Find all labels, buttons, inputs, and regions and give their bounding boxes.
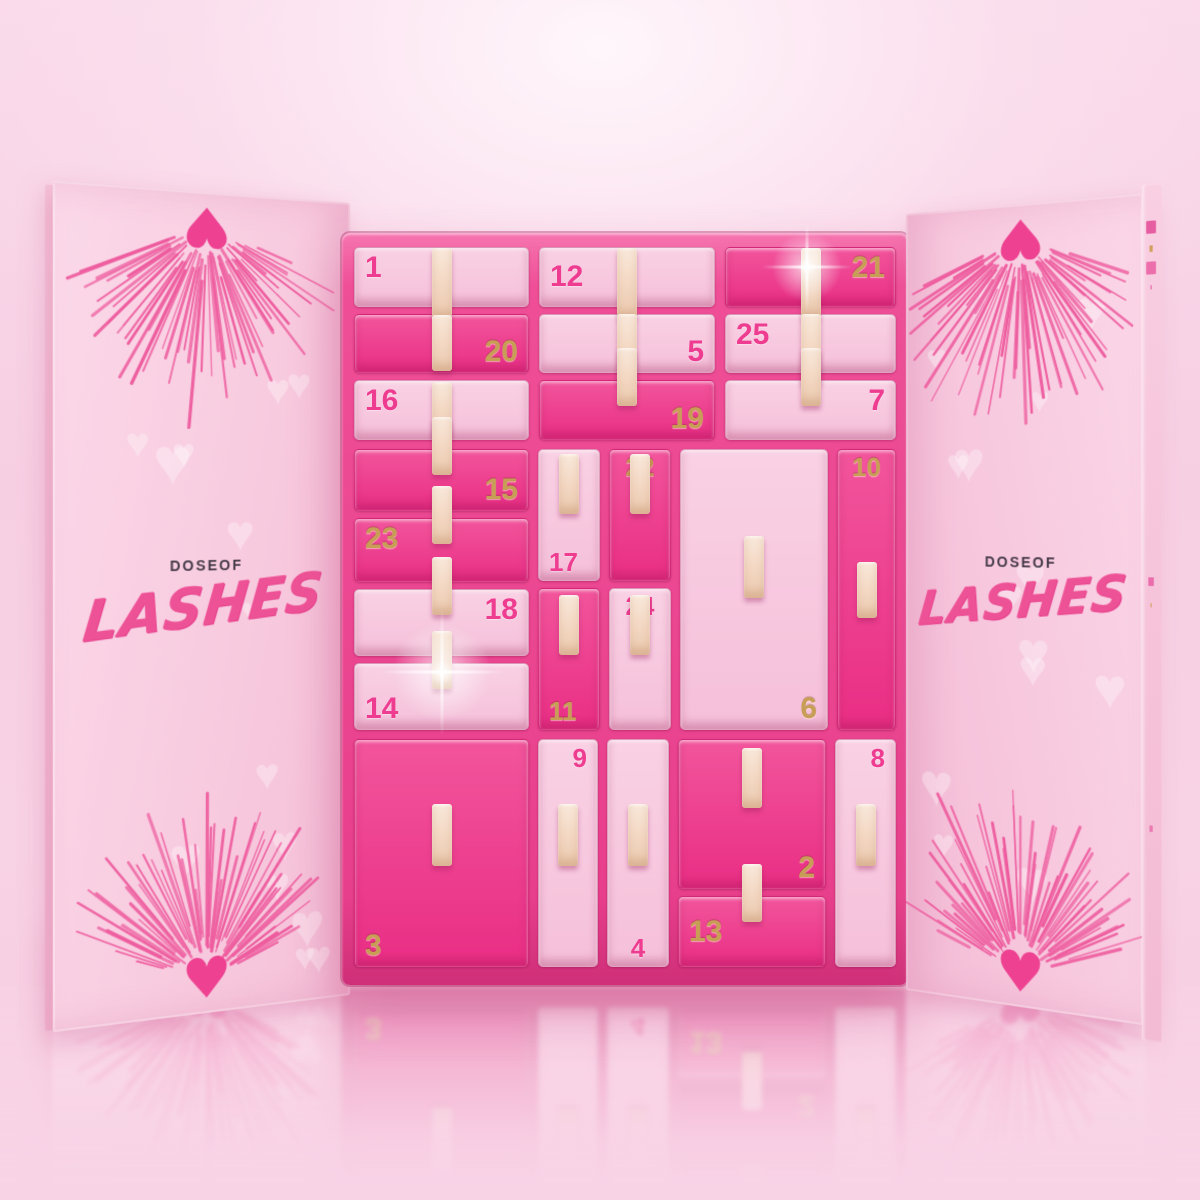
drawer-19-ribbon-pull	[617, 348, 637, 406]
drawer-11-number: 11	[549, 698, 577, 724]
drawer-13-ribbon-pull	[742, 864, 762, 922]
brand-title: LASHES	[917, 563, 1131, 636]
drawer-9-number: 9	[573, 745, 587, 771]
drawer-8-ribbon-pull	[856, 804, 876, 866]
calendar-box: 1 12 21 20 5 25 16 19 7 15 23 18	[342, 233, 908, 985]
drawer-10-number: 10	[852, 454, 881, 480]
drawer-14: 14	[354, 663, 529, 730]
bottom-heart-sunburst: ♥	[906, 722, 1143, 1025]
left-door-panel: ♥♥♥♥♥♥♥♥♥♥♥♥♥♥ ♥ DOSEOF LASHES ♥	[53, 181, 350, 1033]
top-heart-sunburst: ♥	[906, 193, 1143, 482]
drawer-12: 12	[539, 247, 715, 307]
drawer-6: 6	[680, 449, 828, 730]
drawer-17-ribbon-pull	[559, 454, 579, 514]
scene: ♥♥♥♥♥♥♥♥♥♥♥♥♥♥ ♥ DOSEOF LASHES ♥	[0, 0, 1200, 1200]
drawer-20-ribbon-pull	[432, 315, 452, 371]
drawer-24-ribbon-pull	[630, 595, 650, 655]
drawer-5-number: 5	[687, 337, 704, 367]
drawer-13: 13	[678, 896, 826, 967]
drawer-10-ribbon-pull	[857, 562, 877, 618]
drawer-9: 9	[538, 739, 598, 967]
drawer-23-number: 23	[365, 524, 398, 554]
drawer-13-number: 13	[689, 917, 722, 947]
drawer-17-number: 17	[549, 549, 578, 575]
drawer-1-ribbon-pull	[432, 248, 452, 318]
drawer-6-ribbon-pull	[744, 536, 764, 598]
door-outer-spine	[1142, 183, 1162, 1043]
drawer-21-number: 21	[852, 253, 885, 283]
lash-rays-down-icon	[53, 181, 350, 471]
drawer-14-ribbon-pull	[432, 631, 452, 689]
heart-icon: ♥	[182, 943, 232, 1014]
drawer-25-number: 25	[736, 320, 769, 350]
drawer-17: 17	[538, 449, 600, 581]
calendar-middle-section: 15 23 18 14 17 11 22 24 6 10	[354, 449, 896, 730]
drawer-3: 3	[354, 739, 529, 967]
drawer-6-number: 6	[800, 694, 817, 724]
drawer-18-ribbon-pull	[432, 557, 452, 615]
drawer-19: 19	[539, 380, 715, 440]
drawer-8: 8	[835, 739, 896, 967]
left-door-inner-face: ♥♥♥♥♥♥♥♥♥♥♥♥♥♥ ♥ DOSEOF LASHES ♥	[53, 181, 350, 1033]
drawer-3-number: 3	[365, 931, 382, 961]
drawer-21: 21	[725, 247, 896, 307]
heart-icon: ♥	[996, 204, 1045, 273]
calendar-top-section: 1 12 21 20 5 25 16 19 7	[354, 247, 896, 440]
product-photo-advent-calendar: ♥♥♥♥♥♥♥♥♥♥♥♥♥♥ ♥ DOSEOF LASHES ♥	[0, 0, 1200, 1200]
drawer-23-ribbon-pull	[432, 486, 452, 544]
drawer-3-ribbon-pull	[432, 804, 452, 866]
drawer-1: 1	[354, 247, 529, 307]
drawer-7-number: 7	[868, 386, 885, 416]
brand-lockup: DOSEOF LASHES	[906, 552, 1143, 633]
drawer-7: 7	[725, 380, 896, 440]
right-door-inner-face: ♥♥♥♥♥♥♥♥♥♥♥♥♥♥ ♥ DOSEOF LASHES ♥	[906, 193, 1143, 1025]
drawer-16-number: 16	[365, 386, 398, 416]
drawer-15-ribbon-pull	[432, 417, 452, 475]
drawer-20: 20	[354, 314, 529, 374]
lash-rays-down-icon	[906, 193, 1143, 482]
lash-rays-up-icon	[906, 722, 1143, 1025]
drawer-4-ribbon-pull	[628, 804, 648, 866]
drawer-14-number: 14	[365, 694, 398, 724]
drawer-12-number: 12	[550, 262, 583, 292]
drawer-9-ribbon-pull	[558, 804, 578, 866]
brand-title: LASHES	[80, 561, 326, 656]
drawer-22-ribbon-pull	[630, 454, 650, 514]
drawer-19-number: 19	[671, 404, 704, 434]
drawer-10: 10	[837, 449, 896, 730]
drawer-11-ribbon-pull	[559, 595, 579, 655]
right-door-panel: ♥♥♥♥♥♥♥♥♥♥♥♥♥♥ ♥ DOSEOF LASHES ♥	[906, 193, 1143, 1025]
drawer-21-ribbon-pull	[801, 248, 821, 318]
heart-icon: ♥	[182, 192, 232, 261]
drawer-1-number: 1	[365, 253, 382, 283]
bottom-heart-sunburst: ♥	[53, 727, 350, 1032]
drawer-15-number: 15	[485, 475, 518, 505]
drawer-8-number: 8	[871, 745, 885, 771]
heart-icon: ♥	[996, 937, 1045, 1009]
drawer-2-ribbon-pull	[742, 748, 762, 808]
drawer-22: 22	[609, 449, 671, 581]
lash-rays-up-icon	[53, 727, 350, 1032]
drawer-24: 24	[609, 588, 671, 730]
drawer-18-number: 18	[485, 595, 518, 625]
drawer-11: 11	[538, 588, 600, 730]
drawer-20-number: 20	[485, 337, 518, 367]
drawer-4: 4	[607, 739, 669, 967]
drawer-4-number: 4	[631, 935, 645, 961]
calendar-bottom-section: 3 9 4 2 13 8	[354, 739, 896, 967]
drawer-12-ribbon-pull	[617, 248, 637, 318]
brand-lockup: DOSEOF LASHES	[53, 555, 350, 643]
drawer-2-number: 2	[798, 853, 815, 883]
top-heart-sunburst: ♥	[53, 181, 350, 471]
drawer-7-ribbon-pull	[801, 348, 821, 406]
